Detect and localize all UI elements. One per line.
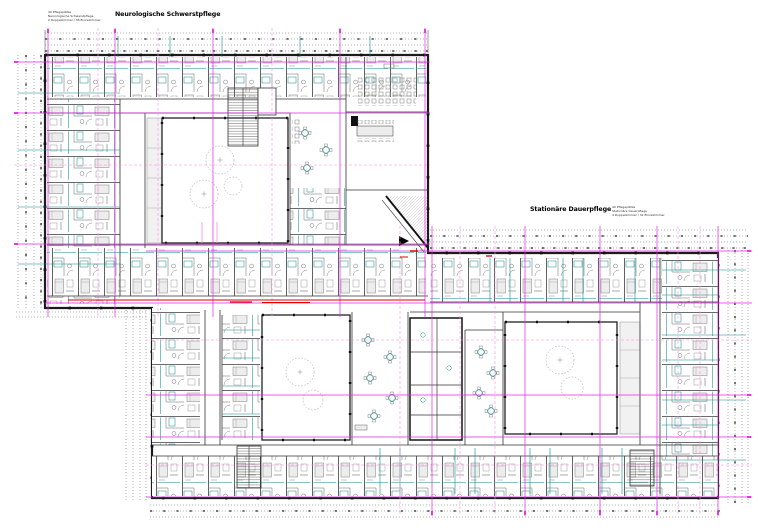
wing2-notes: 40 Pflegeplätze Stationäre Dauerpflege 4… [612,206,665,217]
floorplan-sheet: Neurologische Schwerstpflege 40 Pflegepl… [0,0,758,531]
floor-plan-drawing [0,0,758,531]
wing1-title: Neurologische Schwerstpflege [115,11,220,18]
wing1-notes: 40 Pflegeplätze Neurologische Schwerstpf… [48,11,101,22]
wing2-title: Stationäre Dauerpflege [530,206,611,213]
wing1-note-line-3: 2 Doppelzimmer / 36 Einzelzimmer [48,19,101,23]
wing2-note-line-3: 4 Doppelzimmer / 32 Einzelzimmer [612,214,665,218]
